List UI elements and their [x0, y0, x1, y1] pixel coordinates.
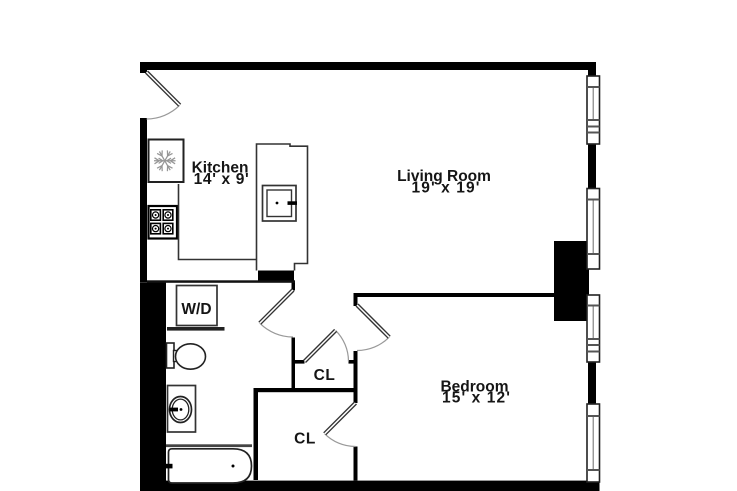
- svg-text:CL: CL: [294, 431, 316, 448]
- svg-text:W/D: W/D: [181, 301, 211, 318]
- svg-text:14' x 9': 14' x 9': [194, 171, 250, 188]
- svg-text:15' x 12': 15' x 12': [442, 390, 511, 407]
- svg-text:19' x 19': 19' x 19': [412, 180, 481, 197]
- svg-text:CL: CL: [314, 367, 336, 384]
